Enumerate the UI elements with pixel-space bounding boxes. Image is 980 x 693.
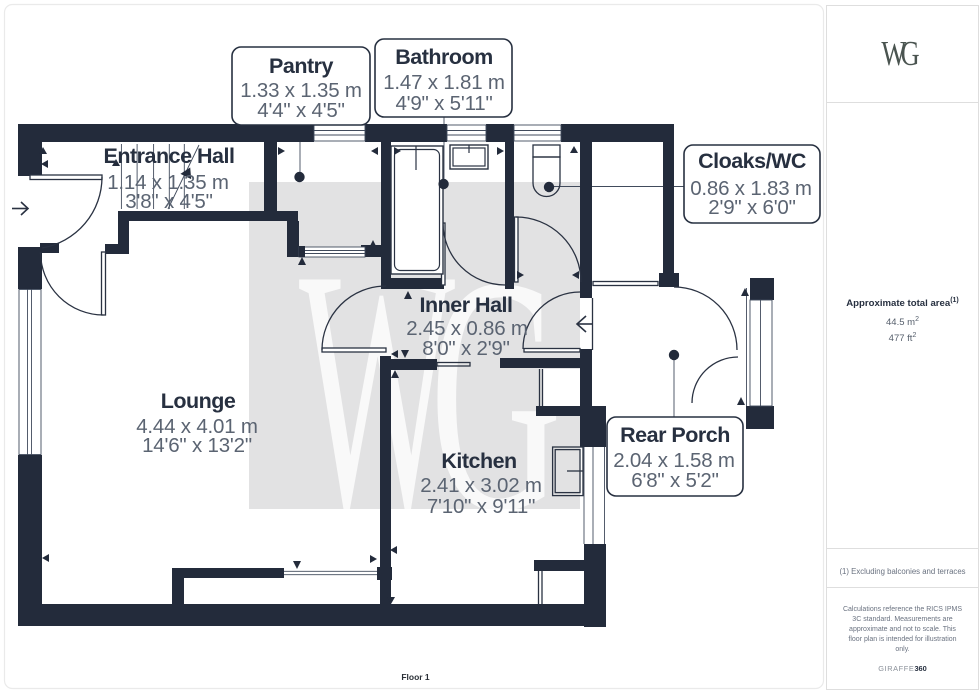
svg-text:Inner Hall: Inner Hall [420, 293, 513, 317]
svg-text:Rear Porch: Rear Porch [620, 423, 730, 447]
svg-text:2.41 x 3.02 m: 2.41 x 3.02 m [420, 474, 542, 497]
svg-text:Kitchen: Kitchen [441, 449, 516, 473]
svg-text:6'8" x 5'2": 6'8" x 5'2" [631, 469, 718, 492]
svg-text:7'10" x 9'11": 7'10" x 9'11" [427, 495, 535, 518]
svg-text:4'4" x 4'5": 4'4" x 4'5" [257, 99, 344, 122]
svg-text:Entrance Hall: Entrance Hall [104, 144, 235, 168]
svg-text:2'9" x 6'0": 2'9" x 6'0" [708, 196, 795, 219]
svg-text:Cloaks/WC: Cloaks/WC [698, 149, 806, 173]
svg-text:14'6" x 13'2": 14'6" x 13'2" [142, 434, 252, 457]
svg-text:Pantry: Pantry [269, 54, 333, 78]
svg-text:Bathroom: Bathroom [395, 45, 493, 69]
svg-text:Lounge: Lounge [161, 389, 236, 413]
svg-text:8'0" x 2'9": 8'0" x 2'9" [422, 337, 509, 360]
svg-text:Floor 1: Floor 1 [401, 672, 430, 682]
svg-text:1.47 x 1.81 m: 1.47 x 1.81 m [383, 71, 505, 94]
svg-text:4'9" x 5'11": 4'9" x 5'11" [395, 92, 492, 115]
svg-text:3'8" x 4'5": 3'8" x 4'5" [125, 190, 212, 213]
